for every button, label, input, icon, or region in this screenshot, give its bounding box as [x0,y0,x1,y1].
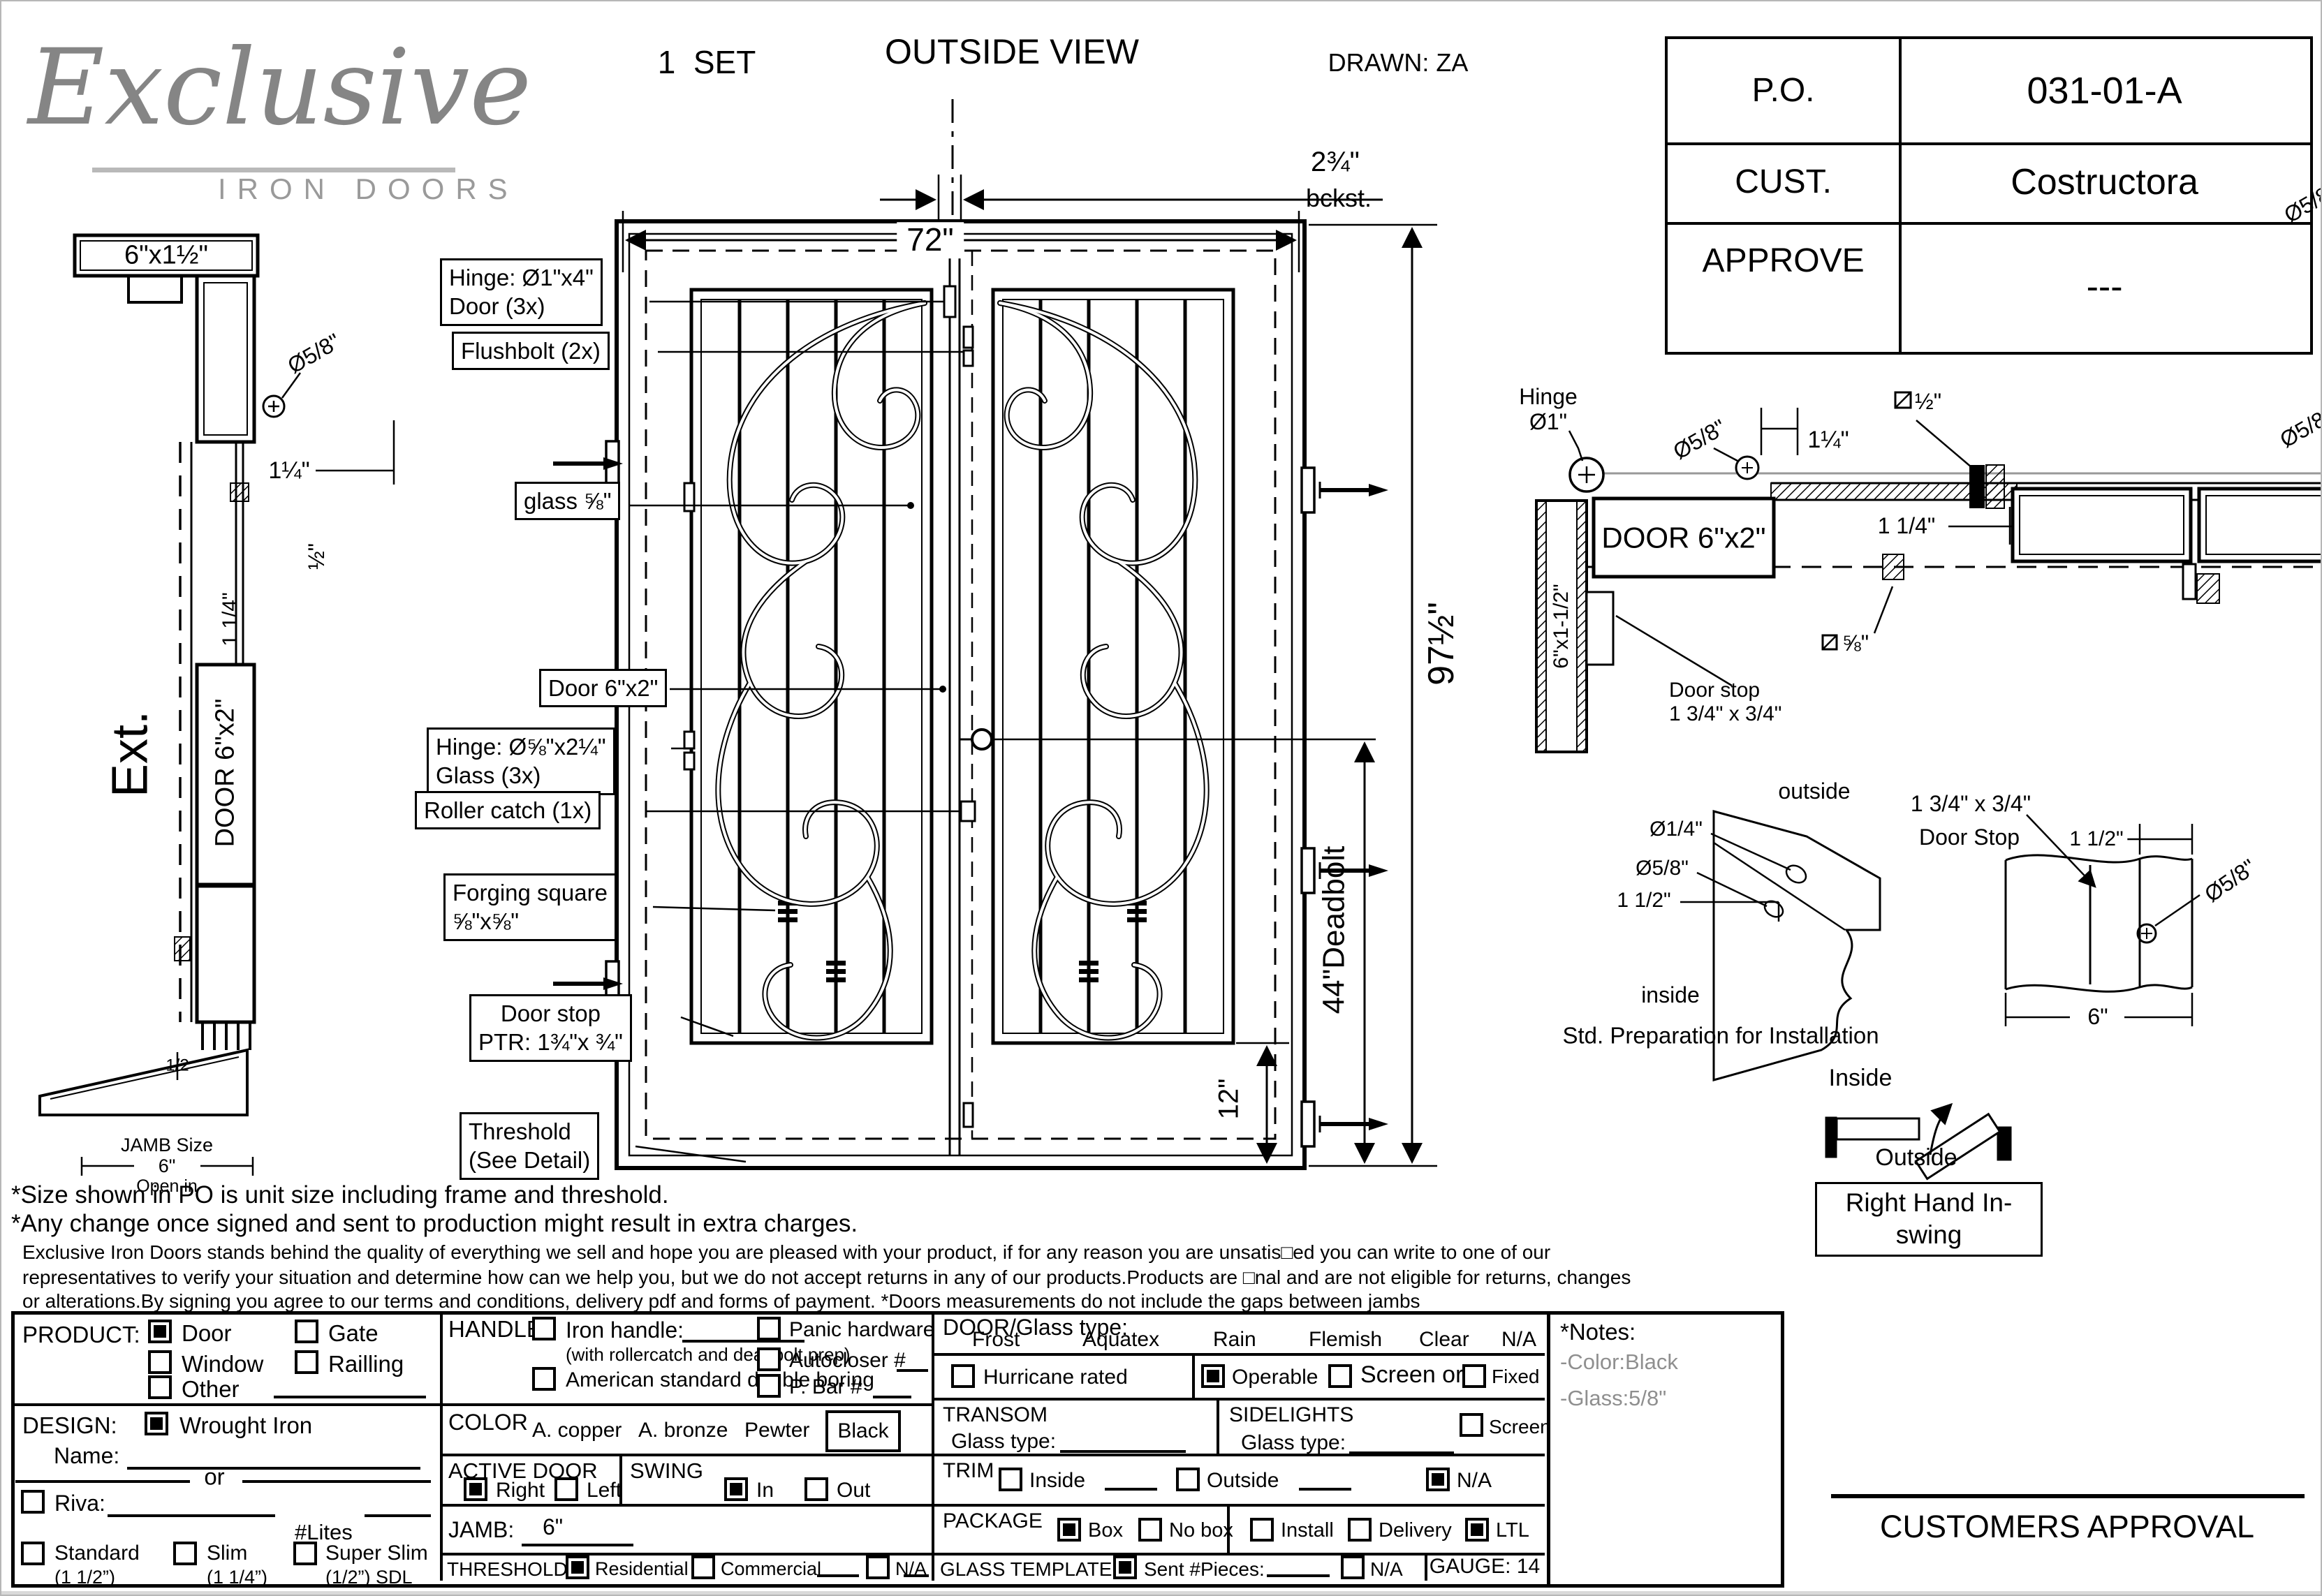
door-elevation-linework [553,99,1388,1168]
product-other: Other [182,1377,240,1403]
logo-subtitle: IRON DOORS [218,172,519,205]
dim-12: 12" [1214,1079,1245,1120]
callout-flushbolt: Flushbolt (2x) [452,332,610,370]
side-jambval-label: 6" [159,1155,176,1176]
checkbox-autocloser[interactable] [757,1347,781,1371]
threshold-commercial: Commercial [721,1558,821,1579]
design-slim: Slim(1 1/4”) [207,1542,267,1588]
note-small-3: or alterations.By signing you agree to o… [22,1290,1420,1312]
callout-line: ⅝"x⅝" [453,907,608,936]
handle-iron: Iron handle: [566,1318,684,1343]
product-railling: Railling [328,1352,404,1377]
prep-d112-label: 1 1/2" [1617,889,1670,912]
plan-detail-linework [1536,392,2322,752]
trim-na-label: N/A [1457,1469,1492,1493]
package-ltl-label: LTL [1496,1519,1529,1542]
callout-threshold: Threshold (See Detail) [460,1112,599,1180]
package-label: PACKAGE [943,1509,1043,1533]
checkbox-delivery[interactable] [1348,1518,1372,1542]
riva-blank-2[interactable] [365,1514,431,1517]
checkbox-template-na[interactable] [1341,1556,1365,1579]
checkbox-trim-inside[interactable] [999,1468,1022,1491]
checkbox-ltl[interactable] [1465,1518,1489,1542]
glass-template-label: GLASS TEMPLATE [940,1558,1112,1580]
callout-line: (See Detail) [469,1146,590,1174]
cust-value: Costructora [2011,162,2198,202]
checkbox-fixed[interactable] [1462,1364,1486,1388]
design-wrought: Wrought Iron [179,1413,312,1439]
checkbox-sidelight-screen[interactable] [1460,1413,1483,1437]
drawing-sheet: Exclusive IRON DOORS 1 SET OUTSIDE VIEW … [0,0,2322,1596]
handle-label: HANDLE [448,1317,542,1343]
checkbox-other-product[interactable] [148,1375,172,1399]
sidelight-screen-label: Screen [1489,1416,1551,1438]
or-line-left [15,1480,190,1483]
prep-caption: Std. Preparation for Installation [1562,1024,1879,1049]
prep-inside-label: inside [1641,983,1700,1008]
checkbox-railling[interactable] [295,1350,318,1374]
checkbox-wrought-iron[interactable] [145,1412,168,1435]
notes-glass: -Glass:5/8" [1560,1387,1666,1411]
checkbox-gate[interactable] [295,1320,318,1343]
sent-pieces-label: Sent #Pieces: [1144,1558,1265,1580]
active-left: Left [587,1479,622,1502]
glass-clear[interactable]: Clear [1419,1328,1469,1352]
or-line-right [242,1480,431,1483]
callout-door-6x2: Door 6"x2" [539,669,667,707]
plan-doorstop-label: Door stop1 3/4" x 3/4" [1669,679,1781,725]
checkbox-iron-handle[interactable] [532,1317,556,1340]
trim-inside-label: Inside [1029,1469,1085,1493]
callout-glass: glass ⅝" [515,482,620,520]
callout-hinge-door: Hinge: Ø1"x4" Door (3x) [440,258,603,326]
trim-outside-label: Outside [1207,1469,1279,1493]
jamb-value[interactable]: 6" [543,1515,563,1540]
checkbox-install[interactable] [1250,1518,1274,1542]
checkbox-commercial[interactable] [691,1556,715,1579]
template-na-label: N/A [1370,1558,1403,1580]
cust-label: CUST. [1735,163,1832,201]
design-or: or [204,1465,224,1491]
callout-line: Door 6"x2" [548,674,658,702]
checkbox-operable[interactable] [1201,1364,1225,1388]
stopd-d112: 1 1/2" [2065,827,2127,851]
riva-blank[interactable] [108,1514,275,1517]
checkbox-hurricane[interactable] [951,1364,975,1388]
callout-line: Glass (3x) [436,761,606,790]
approval-signature-line[interactable] [1831,1494,2305,1498]
checkbox-slim[interactable] [173,1542,197,1565]
plan-dim114-label: 1¼" [1807,427,1849,453]
prep-d14-label: Ø1/4" [1649,818,1703,841]
glass-flemish[interactable]: Flemish [1309,1328,1382,1352]
po-label: P.O. [1752,72,1815,110]
dim-72: 72" [897,222,964,258]
glass-aquatex[interactable]: Aquatex [1082,1328,1159,1352]
plan-dim114b-label: 1 1/4" [1878,514,1936,539]
handle-autocloser: Autocloser # [789,1349,906,1373]
pbar-blank[interactable] [873,1395,911,1398]
callout-line: glass ⅝" [524,487,611,515]
view-title: OUTSIDE VIEW [885,32,1139,71]
glass-rain[interactable]: Rain [1213,1328,1256,1352]
note-small-2: representatives to verify your situation… [22,1266,1631,1288]
color-copper: A. copper [532,1419,622,1442]
callout-line: Threshold [469,1117,590,1146]
plan-door-label: DOOR 6"x2" [1601,521,1765,554]
checkbox-riva[interactable] [21,1490,45,1514]
po-value: 031-01-A [2027,70,2182,112]
po-table: P.O. 031-01-A CUST. Costructora APPROVE … [1665,36,2313,355]
color-pewter: Pewter [744,1419,809,1442]
callout-line: Flushbolt (2x) [461,337,601,365]
handle-pbar: P. Bar # [789,1375,862,1399]
callout-line: Hinge: Ø⅝"x2¼" [436,732,606,761]
callout-line: Forging square [453,878,608,907]
stopd-l1: 1 3/4" x 3/4" [1911,792,2031,817]
checkbox-super-slim[interactable] [293,1542,317,1565]
design-label: DESIGN: [22,1413,117,1439]
swing-out: Out [837,1479,870,1502]
glass-na[interactable]: N/A [1501,1328,1536,1352]
checkbox-sent-pieces[interactable] [1113,1556,1137,1579]
threshold-residential: Residential [595,1558,689,1579]
trim-inside-blank[interactable] [1105,1487,1157,1491]
approval-label: CUSTOMERS APPROVAL [1880,1509,2254,1544]
iron-handle-blank[interactable] [682,1339,804,1343]
swing-outside-label: Outside [1875,1144,1957,1171]
transom-glass-blank[interactable] [1060,1449,1186,1453]
sidelights-glass-blank[interactable] [1349,1451,1454,1454]
swing-label: SWING [630,1459,703,1484]
design-super-slim: Super Slim(1/2”) SDL [325,1542,428,1588]
checkbox-left[interactable] [554,1477,578,1501]
design-name-label: Name: [54,1444,119,1469]
plan-hinge-label: HingeØ1" [1519,385,1578,435]
color-bronze: A. bronze [638,1419,728,1442]
dim-backset-num: 2¾" [1311,147,1360,178]
dim-backset-label: bckst. [1306,184,1372,212]
side-door-label: DOOR 6"x2" [211,699,241,848]
set-count: 1 SET [658,45,756,81]
checkbox-pbar[interactable] [757,1374,781,1398]
checkbox-standard[interactable] [21,1542,45,1565]
note-size: *Size shown in PO is unit size including… [11,1181,669,1209]
checkbox-screen-or[interactable] [1328,1364,1352,1388]
checkbox-trim-na[interactable] [1426,1468,1450,1491]
color-label: COLOR [448,1410,528,1435]
checkbox-out[interactable] [804,1477,828,1501]
callout-line: Door (3x) [449,292,594,320]
callout-line: Door stop [478,999,623,1028]
callout-line: Hinge: Ø1"x4" [449,263,594,292]
product-door: Door [182,1321,232,1347]
handle-panic: Panic hardware [789,1318,934,1342]
threshold-com-blank[interactable] [817,1574,859,1577]
callout-forging-square: Forging square ⅝"x⅝" [443,873,617,941]
threshold-na-blank[interactable] [904,1574,929,1577]
notes-title: *Notes: [1560,1320,1636,1345]
checkbox-right[interactable] [464,1477,487,1501]
side-jambsize-label: JAMB Size [121,1135,213,1155]
checkbox-panic[interactable] [757,1317,781,1340]
checkbox-nobox[interactable] [1138,1518,1162,1542]
notes-color: -Color:Black [1560,1350,1678,1375]
checkbox-threshold-na[interactable] [866,1556,890,1579]
package-delivery-label: Delivery [1379,1519,1452,1542]
fixed-label: Fixed [1492,1366,1539,1387]
jamb-label: JAMB: [448,1518,514,1543]
transom-label: TRANSOM [943,1403,1048,1427]
package-install-label: Install [1281,1519,1334,1542]
checkbox-residential[interactable] [566,1556,589,1579]
side-dim114-label: 1¼" [268,457,309,484]
approve-label: APPROVE [1703,242,1865,280]
side-dim114-rot-label: 1 1/4" [219,592,242,646]
callout-line: PTR: 1¾"x ¾" [478,1028,623,1056]
package-nobox-label: No box [1169,1519,1233,1542]
stopd-d6: 6" [2080,1005,2115,1030]
product-other-blank[interactable] [274,1395,426,1398]
swing-label-box: Right Hand In-swing [1815,1182,2043,1257]
gauge-label: GAUGE: 14 [1430,1555,1540,1579]
side-half-label: 1/2 [166,1057,189,1076]
dim-97half: 97½" [1421,602,1462,686]
checkbox-box[interactable] [1057,1518,1081,1542]
prep-outside-label: outside [1778,779,1850,804]
plan-sq58-label: ⅝" [1842,631,1869,656]
swing-inside-label: Inside [1829,1065,1893,1091]
design-standard: Standard(1 1/2”) [54,1542,140,1588]
side-ext-label: Ext. [103,711,159,797]
product-window: Window [182,1352,263,1377]
plan-sq12-label: ½" [1915,390,1941,415]
threshold-label: THRESHOLD [447,1558,568,1580]
prep-d58-label: Ø5/8" [1636,857,1689,880]
note-small-1: Exclusive Iron Doors stands behind the q… [22,1241,1550,1263]
checkbox-american-boring[interactable] [532,1367,556,1391]
design-riva: Riva: [54,1491,105,1516]
swing-in: In [756,1479,774,1502]
checkbox-window[interactable] [148,1350,172,1374]
checkbox-in[interactable] [724,1477,748,1501]
design-name-blank[interactable] [127,1466,420,1470]
glass-frost[interactable]: Frost [972,1328,1020,1352]
color-black-selected[interactable]: Black [825,1410,901,1452]
trim-label: TRIM [943,1459,994,1483]
drawn-by: DRAWN: ZA [1328,49,1469,77]
stopd-l2: Door Stop [1919,825,2020,850]
hurricane-label: Hurricane rated [983,1366,1128,1389]
sent-pieces-blank[interactable] [1267,1574,1330,1577]
jamb-blank[interactable] [522,1543,633,1546]
callout-door-stop: Door stop PTR: 1¾"x ¾" [469,994,632,1062]
autocloser-blank[interactable] [897,1368,928,1372]
active-right: Right [496,1479,545,1502]
plan-jamb-label: 6"x1-1/2" [1550,584,1573,668]
product-label: PRODUCT: [22,1322,140,1348]
checkbox-trim-outside[interactable] [1176,1468,1200,1491]
side-sq12-label: ½" [304,543,330,570]
product-gate: Gate [328,1321,379,1347]
screen-or-label: Screen or [1360,1361,1463,1388]
callout-roller-catch: Roller catch (1x) [415,791,601,829]
callout-line: Roller catch (1x) [424,796,591,825]
logo-underline [92,168,455,172]
logo-exclusive: Exclusive [28,29,531,147]
sidelights-glass-label: Glass type: [1241,1431,1346,1455]
dim-44-deadbolt: 44"Deadbolt [1316,846,1351,1014]
side-cap-label: 6"x1½" [124,241,208,271]
approve-value: --- [2087,267,2123,307]
note-change: *Any change once signed and sent to prod… [11,1210,858,1237]
checkbox-door[interactable] [148,1320,172,1343]
operable-label: Operable [1232,1366,1318,1389]
transom-glass-label: Glass type: [951,1430,1056,1454]
callout-hinge-glass: Hinge: Ø⅝"x2¼" Glass (3x) [427,727,615,795]
sidelights-label: SIDELIGHTS [1229,1403,1353,1427]
trim-outside-blank[interactable] [1299,1487,1351,1491]
package-box-label: Box [1088,1519,1123,1542]
